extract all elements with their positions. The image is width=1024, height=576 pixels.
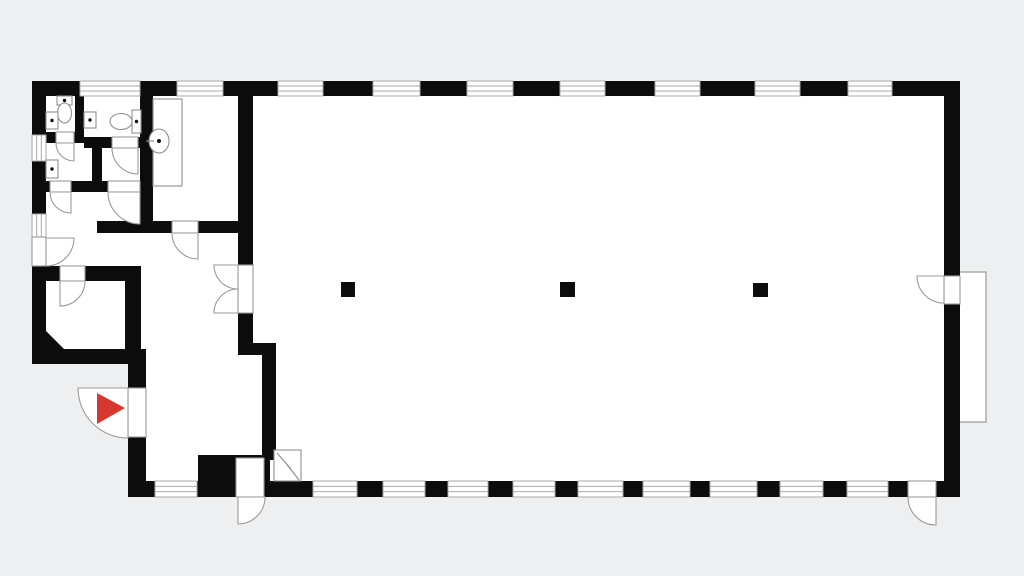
window bbox=[755, 81, 800, 96]
main-entrance-door-leaf bbox=[128, 388, 146, 437]
sink-2-drain bbox=[88, 118, 91, 121]
wall-segment bbox=[238, 313, 253, 343]
wall-segment bbox=[605, 81, 655, 96]
washroom-1-door-leaf bbox=[50, 181, 71, 192]
wall-segment bbox=[71, 181, 108, 192]
south-left-exit-door-leaf bbox=[236, 458, 264, 497]
window bbox=[710, 481, 757, 497]
wall-segment bbox=[944, 81, 960, 276]
wall-segment bbox=[128, 481, 155, 497]
east-exit-door-leaf bbox=[944, 276, 960, 304]
wall-segment bbox=[46, 181, 50, 192]
window bbox=[373, 81, 420, 96]
round-basin-drain bbox=[157, 139, 161, 143]
wall-segment bbox=[555, 481, 578, 497]
wc1-bowl bbox=[58, 103, 72, 123]
wall-segment bbox=[323, 81, 373, 96]
window bbox=[313, 481, 357, 497]
wall-segment bbox=[32, 161, 46, 214]
wc2-bowl bbox=[110, 114, 132, 130]
wall-segment bbox=[128, 364, 146, 388]
window bbox=[780, 481, 823, 497]
wall-segment bbox=[75, 96, 84, 132]
storage-room-door-leaf bbox=[60, 266, 85, 281]
structural-column bbox=[341, 282, 355, 297]
window bbox=[560, 81, 605, 96]
kitchenette-door-leaf bbox=[172, 221, 198, 233]
window bbox=[448, 481, 488, 497]
window bbox=[32, 135, 46, 161]
wall-segment bbox=[757, 481, 780, 497]
window bbox=[80, 81, 140, 96]
wc2-door-leaf bbox=[112, 137, 138, 148]
wall-segment bbox=[425, 481, 448, 497]
window bbox=[848, 81, 892, 96]
wall-segment bbox=[357, 481, 383, 497]
wall-segment bbox=[262, 355, 276, 460]
window bbox=[643, 481, 690, 497]
south-right-exit-door-leaf bbox=[908, 481, 936, 497]
wall-segment bbox=[690, 481, 710, 497]
hall-double-door-upper-leaf bbox=[238, 265, 253, 313]
window bbox=[32, 214, 46, 237]
wall-segment bbox=[92, 143, 102, 182]
wc1-door-leaf bbox=[56, 132, 74, 143]
structural-column bbox=[753, 283, 768, 297]
wall-segment bbox=[223, 81, 278, 96]
window bbox=[177, 81, 223, 96]
wc2-cistern-button bbox=[135, 120, 138, 123]
wall-segment bbox=[944, 304, 960, 497]
window bbox=[655, 81, 700, 96]
window bbox=[383, 481, 425, 497]
wall-segment bbox=[420, 81, 467, 96]
window bbox=[278, 81, 323, 96]
wall-segment bbox=[238, 343, 276, 355]
wall-segment bbox=[46, 266, 60, 281]
wall-segment bbox=[32, 81, 46, 135]
wall-segment bbox=[823, 481, 847, 497]
window bbox=[513, 481, 555, 497]
wall-segment bbox=[140, 96, 153, 221]
structural-column bbox=[560, 282, 575, 297]
wall-segment bbox=[140, 81, 177, 96]
wall-segment bbox=[264, 481, 313, 497]
sink-1-drain bbox=[50, 119, 53, 122]
wall-segment bbox=[74, 132, 84, 143]
wall-segment bbox=[888, 481, 908, 497]
wall-segment bbox=[32, 349, 146, 364]
floor-plan-canvas bbox=[0, 0, 1024, 576]
wall-segment bbox=[488, 481, 513, 497]
wall-segment bbox=[128, 437, 146, 481]
sink-3-drain bbox=[50, 167, 53, 170]
west-side-door-leaf bbox=[32, 237, 46, 266]
floor-plan-page bbox=[0, 0, 1024, 576]
window bbox=[467, 81, 513, 96]
wc1-cistern-button bbox=[63, 99, 66, 102]
wall-segment bbox=[238, 96, 253, 265]
window bbox=[155, 481, 197, 497]
window bbox=[847, 481, 888, 497]
wall-segment bbox=[197, 481, 236, 497]
wall-segment bbox=[513, 81, 560, 96]
window bbox=[578, 481, 623, 497]
wall-segment bbox=[800, 81, 848, 96]
wall-segment bbox=[623, 481, 643, 497]
wall-segment bbox=[46, 132, 56, 143]
washroom-2-door-leaf bbox=[108, 181, 140, 192]
wall-segment bbox=[198, 221, 238, 233]
wall-segment bbox=[700, 81, 755, 96]
